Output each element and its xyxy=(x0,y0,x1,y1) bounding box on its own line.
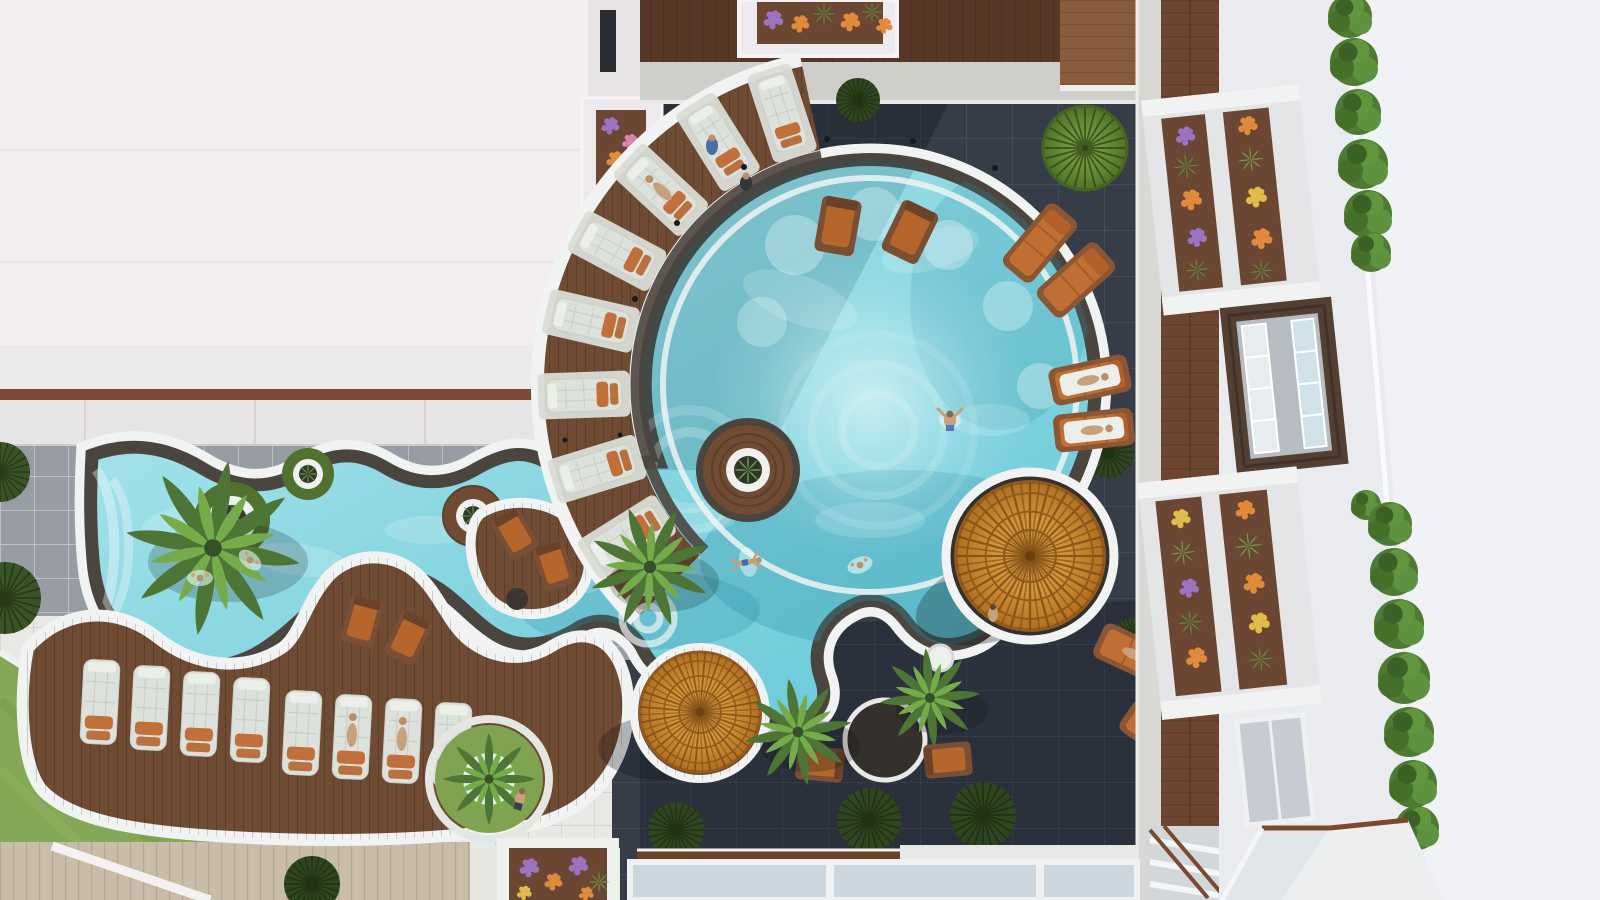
bottom-planter xyxy=(497,838,619,900)
balcony-planter-lower xyxy=(1137,466,1321,719)
framed-window xyxy=(1220,297,1349,476)
balcony-planter-upper xyxy=(1141,84,1321,315)
plaza-planter xyxy=(429,719,549,839)
side-table xyxy=(506,588,528,610)
window-slit xyxy=(600,10,616,72)
skylight-band xyxy=(630,862,1137,900)
top-center-balcony xyxy=(739,0,897,56)
fan-tree-bright xyxy=(1043,106,1127,190)
walkway-stairs xyxy=(1146,826,1222,900)
swimmer xyxy=(187,570,213,586)
glass-door xyxy=(1237,715,1314,825)
resort-aerial-scene xyxy=(0,0,1600,900)
scene-canvas xyxy=(0,0,1600,900)
